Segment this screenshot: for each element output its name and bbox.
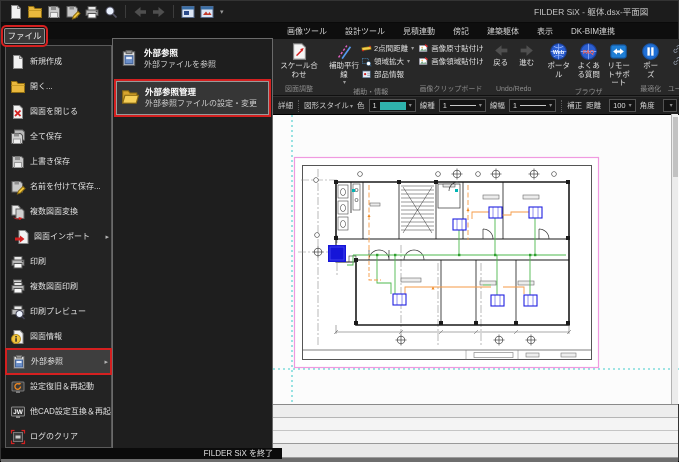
line-type-preview <box>450 105 476 106</box>
line-type-label: 線種 <box>420 100 435 111</box>
shape-style-dropdown[interactable]: 図形スタイル <box>304 100 353 111</box>
group-label-browser: ブラウザ <box>575 88 603 96</box>
menu-item-save-all[interactable]: 全て保存 <box>6 124 111 149</box>
ribbon: スケール合わせ 図面調整 補助平行線 2点間距離 <box>273 39 679 96</box>
group-label-user-tools: ユーザーツール <box>668 85 679 95</box>
ribbon-group-undo-redo: 戻る 進む Undo/Redo <box>486 39 542 95</box>
drawing-canvas[interactable] <box>273 114 679 404</box>
link-icon <box>672 44 679 54</box>
web-portal-button[interactable]: ポータル <box>544 40 574 79</box>
menu-item-clear-log[interactable]: ログのクリア <box>6 424 111 449</box>
vertical-scrollbar[interactable] <box>671 114 678 404</box>
menu-item-print-multiple[interactable]: 複数図面印刷 <box>6 274 111 299</box>
pause-button[interactable]: ポーズ <box>638 40 664 79</box>
paste-image-region-button[interactable]: 画像領域貼付け <box>418 55 484 68</box>
exit-application-button[interactable]: FILDER SiX を終了 <box>1 448 282 459</box>
external-reference-manage-icon <box>121 88 139 106</box>
zoom-area-icon <box>361 56 372 67</box>
open-folder-icon[interactable] <box>27 4 43 20</box>
tab-view[interactable]: 表示 <box>528 26 562 37</box>
group-label-image-clipboard: 画像クリップボード <box>419 85 482 95</box>
menu-item-save[interactable]: 上書き保存 <box>6 149 111 174</box>
window-title: FILDER SiX - 躯体.dsx-平面図 <box>534 6 648 18</box>
ribbon-group-optimize: ポーズ 最適化 <box>636 39 666 95</box>
submenu-item-external-reference[interactable]: 外部参照 外部ファイルを参照 <box>116 43 269 75</box>
save-as-icon[interactable] <box>65 4 81 20</box>
menu-item-print-preview[interactable]: 印刷プレビュー <box>6 299 111 324</box>
message-bar-row <box>273 430 678 443</box>
save-icon <box>10 154 26 170</box>
drawing-info-icon <box>10 329 26 345</box>
part-info-button[interactable]: 部品情報 <box>361 68 414 81</box>
tab-dk-bim[interactable]: DK-BIM連携 <box>562 26 624 37</box>
ribbon-group-user-tools: Word Excel ユーザーツール <box>666 39 679 95</box>
command-bar-row <box>273 417 678 430</box>
link-icon <box>672 56 679 66</box>
app-window: ▾ FILDER SiX - 躯体.dsx-平面図 画像ツール 設計ツール 見積… <box>0 0 679 461</box>
print-preview-icon <box>10 304 26 320</box>
menu-item-close-drawing[interactable]: 図面を閉じる <box>6 99 111 124</box>
menu-item-new[interactable]: 新規作成 <box>6 49 111 74</box>
excel-link-button[interactable]: Excel <box>672 55 679 67</box>
toolbar-separator <box>173 5 174 18</box>
save-all-icon <box>10 129 26 145</box>
correction-label: 補正 <box>567 100 582 111</box>
aux-parallel-line-button[interactable]: 補助平行線 <box>327 40 361 88</box>
floor-plan-drawing <box>273 115 679 405</box>
menu-item-open[interactable]: 開く... <box>6 74 111 99</box>
line-width-label: 線幅 <box>490 100 505 111</box>
status-bar <box>273 443 678 457</box>
menu-item-save-as[interactable]: 名前を付けて保存... <box>6 174 111 199</box>
pause-icon <box>641 42 660 61</box>
detail-toggle[interactable]: 詳細 <box>278 100 293 111</box>
print-preview-icon[interactable] <box>103 4 119 20</box>
distance-value-select[interactable]: 100 <box>609 99 636 112</box>
menu-item-drawing-info[interactable]: 図面情報 <box>6 324 111 349</box>
open-folder-icon <box>10 79 26 95</box>
undo-arrow-icon <box>489 42 513 59</box>
submenu-item-external-reference-manage[interactable]: 外部参照管理 外部参照ファイルの設定・変更 <box>116 81 269 115</box>
color-select[interactable]: 1 <box>369 99 416 112</box>
save-as-icon <box>10 179 26 195</box>
distance-snap-label: 距離 <box>586 100 601 111</box>
faq-globe-icon <box>579 42 598 61</box>
redo-button[interactable]: 進む <box>514 40 540 68</box>
paste-image-icon <box>418 43 429 54</box>
remote-support-button[interactable]: リモートサポート <box>604 40 634 88</box>
tab-image-tools[interactable]: 画像ツール <box>278 26 336 37</box>
remote-support-icon <box>609 42 628 61</box>
save-icon[interactable] <box>46 4 62 20</box>
external-reference-icon <box>11 354 27 370</box>
menu-item-print[interactable]: 印刷 <box>6 249 111 274</box>
style-toolbar: 詳細 図形スタイル 色 1 線種 1 線幅 1 補正 距離 100 角度 <box>273 96 679 114</box>
toolbar-overflow-icon[interactable]: ▾ <box>220 8 224 16</box>
ribbon-group-image-clipboard: 画像原寸貼付け 画像領域貼付け 画像クリップボード <box>416 39 486 95</box>
part-info-icon <box>361 69 372 80</box>
tab-design-tools[interactable]: 設計ツール <box>336 26 394 37</box>
tab-estimate-link[interactable]: 見積連動 <box>394 26 444 37</box>
import-drawing-icon <box>14 229 30 245</box>
zoom-area-button[interactable]: 領域拡大 <box>361 55 414 68</box>
word-link-button[interactable]: Word <box>672 43 679 55</box>
external-reference-submenu: 外部参照 外部ファイルを参照 外部参照管理 外部参照ファイルの設定・変更 <box>112 38 273 449</box>
vertical-scrollbar-thumb[interactable] <box>673 117 678 177</box>
menu-item-import-drawing[interactable]: 図面インポート <box>6 224 111 249</box>
file-menu-button[interactable]: ファイル <box>4 28 45 44</box>
ruler-icon <box>361 43 372 54</box>
print-icon <box>10 254 26 270</box>
angle-snap-label: 角度 <box>640 100 655 111</box>
jw-cad-compat-icon <box>10 404 26 420</box>
convert-drawings-icon <box>10 204 26 220</box>
two-point-distance-button[interactable]: 2点間距離 <box>361 42 414 55</box>
toolbar-separator <box>125 5 126 18</box>
aux-parallel-line-label: 補助平行線 <box>329 62 359 79</box>
clear-log-icon <box>10 429 26 445</box>
new-document-icon[interactable] <box>8 4 24 20</box>
tab-building-frame[interactable]: 建築躯体 <box>478 26 528 37</box>
close-drawing-icon <box>10 104 26 120</box>
undo-button[interactable]: 戻る <box>488 40 514 68</box>
line-width-select[interactable]: 1 <box>509 99 556 112</box>
toolbar-separator <box>298 100 299 112</box>
menu-item-convert-drawings[interactable]: 複数図面変換 <box>6 199 111 224</box>
restore-settings-icon <box>10 379 26 395</box>
print-icon[interactable] <box>84 4 100 20</box>
paste-image-region-icon <box>418 56 429 67</box>
color-label: 色 <box>357 100 365 111</box>
external-reference-icon <box>120 49 138 67</box>
group-label-assist-info: 補助・情報 <box>353 88 388 96</box>
group-label-drawing-adjust: 図面調整 <box>285 85 313 95</box>
web-globe-icon <box>549 42 568 61</box>
ribbon-tab-row: 画像ツール 設計ツール 見積連動 傍記 建築躯体 表示 DK-BIM連携 <box>1 23 678 39</box>
undo-icon[interactable] <box>132 4 148 20</box>
horizontal-scrollbar[interactable] <box>273 404 678 417</box>
color-swatch <box>380 102 406 110</box>
faq-button[interactable]: よくある質問 <box>574 40 604 79</box>
parallel-lines-icon <box>335 42 354 61</box>
menu-item-restore-settings[interactable]: 設定復旧＆再起動 <box>6 374 111 399</box>
line-type-select[interactable]: 1 <box>439 99 486 112</box>
menu-item-external-reference[interactable]: 外部参照 <box>6 349 111 374</box>
redo-arrow-icon <box>515 42 539 59</box>
group-label-undo-redo: Undo/Redo <box>496 85 531 95</box>
drawing-window-icon[interactable] <box>180 4 196 20</box>
angle-value-select[interactable] <box>663 99 677 112</box>
print-multiple-icon <box>10 279 26 295</box>
menu-item-cad-compat[interactable]: 他CAD設定互換＆再起動 <box>6 399 111 424</box>
scale-fit-button[interactable]: スケール合わせ <box>275 40 323 79</box>
ribbon-group-browser: ポータル よくある質問 リモートサポート ブラウザ <box>542 39 636 95</box>
image-window-icon[interactable] <box>199 4 215 20</box>
redo-icon[interactable] <box>151 4 167 20</box>
line-width-preview <box>520 105 546 106</box>
group-label-optimize: 最適化 <box>640 85 661 95</box>
paste-image-original-button[interactable]: 画像原寸貼付け <box>418 42 484 55</box>
scale-fit-label: スケール合わせ <box>277 62 321 79</box>
scale-fit-icon <box>290 42 309 61</box>
ribbon-group-drawing-adjust: スケール合わせ 図面調整 <box>273 39 325 95</box>
new-document-icon <box>10 54 26 70</box>
ribbon-group-assist-info: 補助平行線 2点間距離 領域拡大 部品情報 <box>325 39 416 95</box>
tab-annotation[interactable]: 傍記 <box>444 26 478 37</box>
toolbar-separator <box>561 100 562 112</box>
file-menu-panel: 新規作成 開く... 図面を閉じる 全て保存 上書き保存 名前を付けて保存...… <box>5 45 112 448</box>
